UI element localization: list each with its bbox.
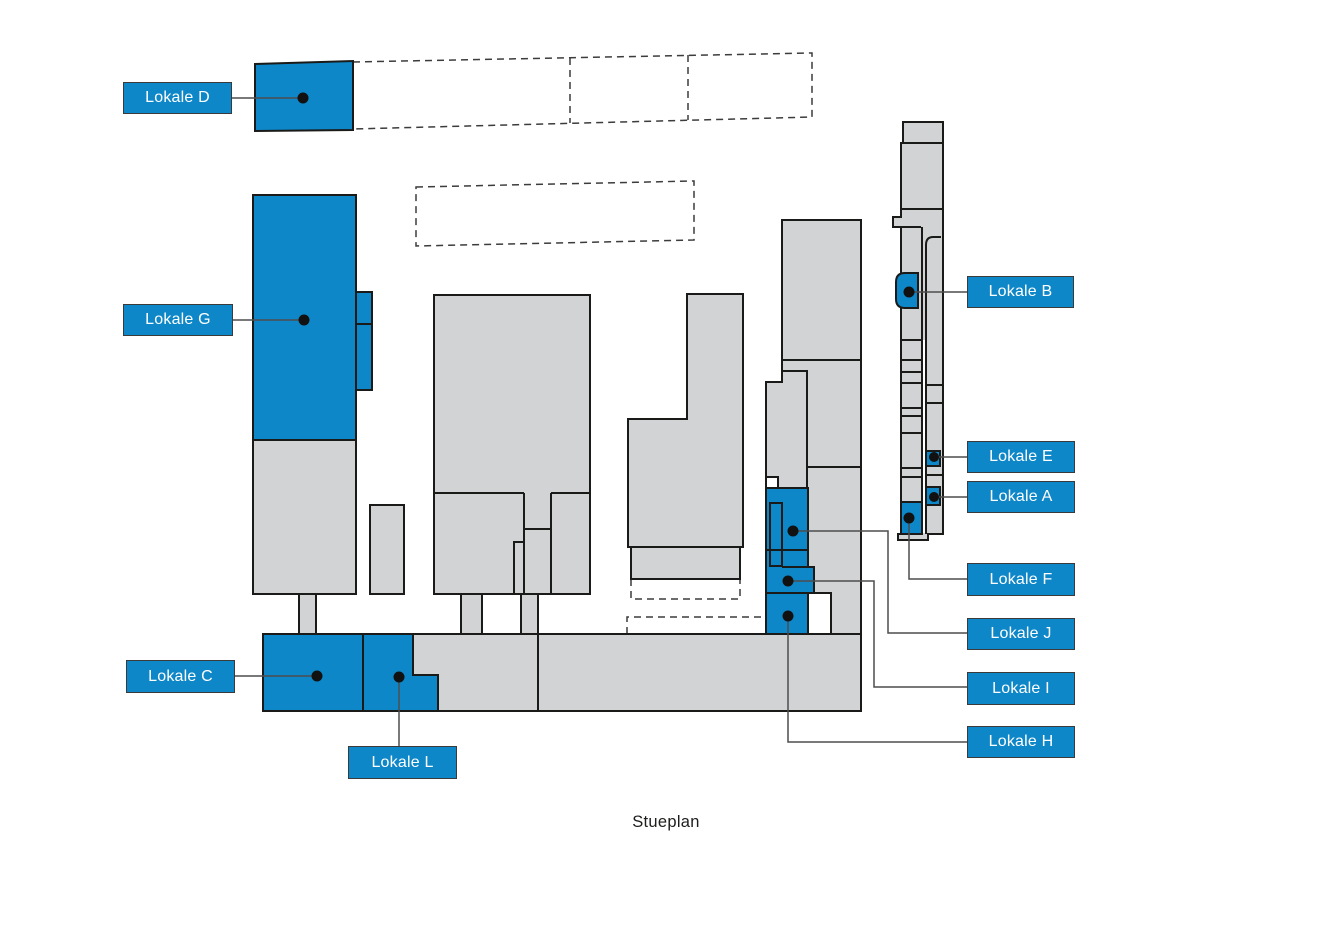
dot-c [312,671,323,682]
label-lokale-c[interactable]: Lokale C [126,660,235,693]
label-lokale-l[interactable]: Lokale L [348,746,457,779]
building-midright [628,294,743,547]
dashed-annex-south [631,579,740,599]
floor-plan-canvas: Lokale D Lokale G Lokale C Lokale L Loka… [0,0,1330,949]
label-lokale-g[interactable]: Lokale G [123,304,233,336]
dashed-wing-mid [416,181,694,246]
label-lokale-a[interactable]: Lokale A [967,481,1075,513]
dot-d [298,93,309,104]
building-central [434,295,590,594]
label-lokale-e[interactable]: Lokale E [967,441,1075,473]
dot-l [394,672,405,683]
dashed-wing-north [353,53,812,129]
dot-j [788,526,799,537]
dot-f [904,513,915,524]
building-east-notch [766,477,778,488]
floor-plan-drawing [0,0,1330,949]
dot-h [783,611,794,622]
connector-central-1 [461,594,482,634]
building-west-lower [253,440,356,594]
plan-caption: Stueplan [566,813,766,832]
label-lokale-f[interactable]: Lokale F [967,563,1075,596]
room-i[interactable] [766,550,814,593]
dot-i [783,576,794,587]
label-lokale-d[interactable]: Lokale D [123,82,232,114]
dot-b [904,287,915,298]
room-g-annex-2[interactable] [356,324,372,390]
dot-a [929,492,939,502]
label-lokale-i[interactable]: Lokale I [967,672,1075,705]
building-small-annex [370,505,404,594]
building-midright-base [631,547,740,579]
connector-west [299,594,316,634]
dot-e [929,452,939,462]
dashed-annex-strip [627,617,767,634]
label-lokale-h[interactable]: Lokale H [967,726,1075,758]
room-g-annex-1[interactable] [356,292,372,324]
label-lokale-j[interactable]: Lokale J [967,618,1075,650]
label-lokale-b[interactable]: Lokale B [967,276,1074,308]
connector-central-2 [521,594,538,634]
dot-g [299,315,310,326]
room-j[interactable] [766,488,808,550]
